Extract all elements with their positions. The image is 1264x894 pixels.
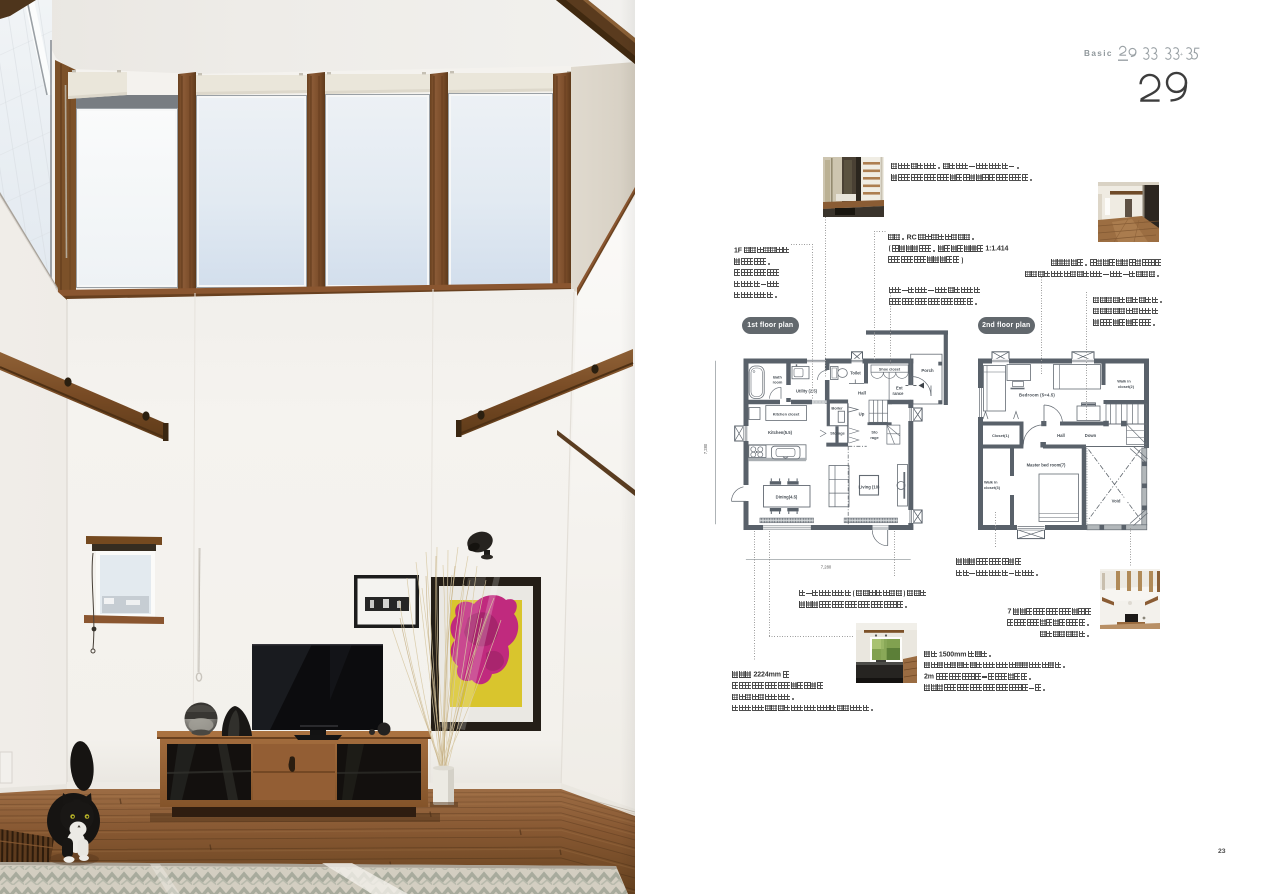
svg-text:closet(2): closet(2) bbox=[1118, 384, 1135, 389]
svg-text:Sto: Sto bbox=[871, 430, 878, 435]
svg-text:Toilet: Toilet bbox=[850, 371, 861, 376]
svg-text:Walk in: Walk in bbox=[984, 480, 998, 485]
svg-text:rage: rage bbox=[870, 435, 879, 440]
svg-text:Down: Down bbox=[1085, 433, 1097, 438]
svg-text:7,280: 7,280 bbox=[703, 443, 708, 454]
svg-text:7,280: 7,280 bbox=[821, 564, 832, 569]
svg-text:room: room bbox=[773, 380, 783, 385]
svg-text:Master bed room(7): Master bed room(7) bbox=[1027, 462, 1066, 467]
svg-text:Dining(4.5): Dining(4.5) bbox=[776, 494, 798, 499]
svg-text:+: + bbox=[1180, 52, 1183, 58]
svg-text:Walk in: Walk in bbox=[1117, 379, 1131, 384]
svg-text:Hall: Hall bbox=[858, 391, 866, 396]
svg-text:closet(3): closet(3) bbox=[984, 485, 1001, 490]
svg-text:Ent: Ent bbox=[896, 386, 903, 391]
svg-text:Porch: Porch bbox=[921, 368, 934, 373]
svg-text:Shoe closet: Shoe closet bbox=[879, 367, 901, 371]
svg-text:Kitchen(5.5): Kitchen(5.5) bbox=[768, 430, 793, 435]
svg-text:Kitchen closet: Kitchen closet bbox=[773, 412, 800, 417]
svg-text:Bedroom (5=4.5): Bedroom (5=4.5) bbox=[1019, 393, 1055, 398]
svg-text:Living (10): Living (10) bbox=[859, 485, 881, 490]
svg-text:Hall: Hall bbox=[1057, 433, 1065, 438]
svg-text:Basic: Basic bbox=[1084, 49, 1113, 58]
svg-text:Up: Up bbox=[859, 412, 865, 417]
svg-text:Boiler: Boiler bbox=[831, 406, 843, 411]
svg-text:Void: Void bbox=[1112, 499, 1121, 504]
svg-text:Closet(1): Closet(1) bbox=[992, 433, 1010, 438]
svg-text:rance: rance bbox=[893, 391, 905, 396]
svg-text:Storage: Storage bbox=[830, 431, 845, 436]
svg-text:Utility (2.5): Utility (2.5) bbox=[796, 389, 818, 394]
